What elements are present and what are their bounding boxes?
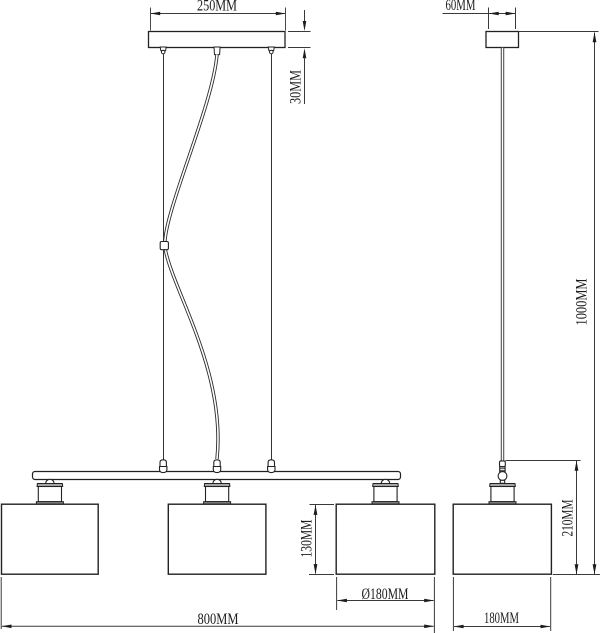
svg-text:60MM: 60MM [446, 0, 476, 14]
svg-text:250MM: 250MM [197, 0, 237, 15]
svg-text:30MM: 30MM [288, 70, 305, 104]
svg-text:130MM: 130MM [299, 519, 316, 557]
svg-text:800MM: 800MM [198, 611, 239, 628]
svg-text:180MM: 180MM [484, 610, 519, 627]
svg-text:1000MM: 1000MM [574, 278, 591, 325]
svg-text:Ø180MM: Ø180MM [362, 586, 409, 603]
svg-text:210MM: 210MM [560, 499, 577, 536]
